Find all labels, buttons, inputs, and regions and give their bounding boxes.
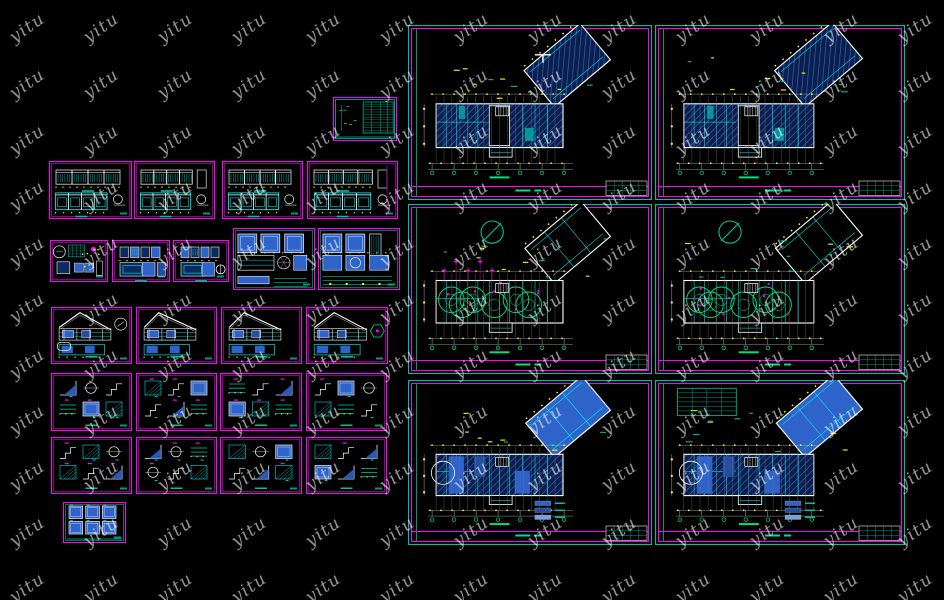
watermark-text: yitu bbox=[80, 9, 123, 48]
watermark-text: yitu bbox=[154, 513, 197, 552]
watermark-text: yitu bbox=[6, 65, 49, 104]
sheet-details-detail-sheet-6 bbox=[136, 437, 217, 494]
watermark-text: yitu bbox=[154, 9, 197, 48]
watermark-text: yitu bbox=[6, 569, 49, 600]
sheet-details-detail-sheet-3 bbox=[220, 373, 302, 431]
sheet-furniture-plan-plan-c bbox=[408, 204, 652, 374]
watermark-text: yitu bbox=[6, 513, 49, 552]
sheet-details-detail-sheet-7 bbox=[220, 437, 302, 494]
sheet-panelgrid-detail-panels-1 bbox=[233, 228, 315, 290]
sheet-floor-finish-plan-plan-e bbox=[408, 380, 652, 545]
sheet-details-detail-sheet-4 bbox=[306, 373, 387, 431]
watermark-text: yitu bbox=[154, 121, 197, 160]
sheet-furniture-plan-plan-d bbox=[655, 204, 905, 374]
watermark-text: yitu bbox=[598, 569, 641, 600]
cad-preview-canvas: yituyituyituyituyituyituyituyituyituyitu… bbox=[0, 0, 944, 600]
sheet-elevation-elevation-3 bbox=[222, 161, 303, 219]
sheet-details-detail-sheet-8 bbox=[306, 437, 387, 494]
watermark-text: yitu bbox=[746, 569, 789, 600]
sheet-floor-finish-plan-plan-f bbox=[655, 380, 905, 545]
sheet-room-room-details bbox=[50, 240, 108, 282]
watermark-text: yitu bbox=[672, 569, 715, 600]
watermark-text: yitu bbox=[228, 9, 271, 48]
watermark-text: yitu bbox=[302, 569, 345, 600]
sheet-elevation-elevation-1 bbox=[49, 161, 132, 219]
watermark-text: yitu bbox=[228, 65, 271, 104]
watermark-text: yitu bbox=[376, 569, 419, 600]
sheet-elevdark-interior-elev-1 bbox=[112, 240, 170, 282]
watermark-text: yitu bbox=[6, 289, 49, 328]
watermark-text: yitu bbox=[302, 9, 345, 48]
sheet-elevdark-interior-elev-2 bbox=[173, 240, 229, 282]
watermark-text: yitu bbox=[302, 513, 345, 552]
sheet-elevation-elevation-2 bbox=[134, 161, 215, 219]
sheet-index-index-table bbox=[333, 97, 397, 141]
sheet-details-detail-sheet-2 bbox=[136, 373, 217, 431]
watermark-text: yitu bbox=[6, 9, 49, 48]
sheet-section-section-3 bbox=[221, 307, 302, 364]
sheet-ceiling-plan-plan-b bbox=[655, 25, 905, 200]
watermark-text: yitu bbox=[820, 569, 863, 600]
watermark-text: yitu bbox=[894, 569, 937, 600]
sheet-ceiling-plan-plan-a bbox=[408, 25, 652, 200]
watermark-text: yitu bbox=[524, 569, 567, 600]
sheet-elevation-elevation-4 bbox=[307, 161, 398, 219]
sheet-panelgrid-detail-panels-2 bbox=[318, 228, 400, 290]
sheet-section-section-4 bbox=[306, 307, 388, 364]
watermark-text: yitu bbox=[228, 513, 271, 552]
watermark-text: yitu bbox=[6, 457, 49, 496]
watermark-text: yitu bbox=[228, 121, 271, 160]
watermark-text: yitu bbox=[228, 569, 271, 600]
watermark-text: yitu bbox=[6, 345, 49, 384]
sheet-details-detail-sheet-1 bbox=[51, 373, 132, 431]
sheet-squares6-detail-squares bbox=[63, 502, 126, 543]
watermark-text: yitu bbox=[80, 569, 123, 600]
watermark-text: yitu bbox=[6, 401, 49, 440]
sheet-details-detail-sheet-5 bbox=[51, 437, 132, 494]
watermark-text: yitu bbox=[6, 177, 49, 216]
watermark-text: yitu bbox=[80, 121, 123, 160]
sheet-section-section-2 bbox=[136, 307, 217, 364]
watermark-text: yitu bbox=[80, 65, 123, 104]
watermark-text: yitu bbox=[6, 233, 49, 272]
watermark-text: yitu bbox=[154, 65, 197, 104]
watermark-text: yitu bbox=[450, 569, 493, 600]
watermark-text: yitu bbox=[154, 569, 197, 600]
watermark-text: yitu bbox=[6, 121, 49, 160]
sheet-section-section-1 bbox=[51, 307, 132, 364]
